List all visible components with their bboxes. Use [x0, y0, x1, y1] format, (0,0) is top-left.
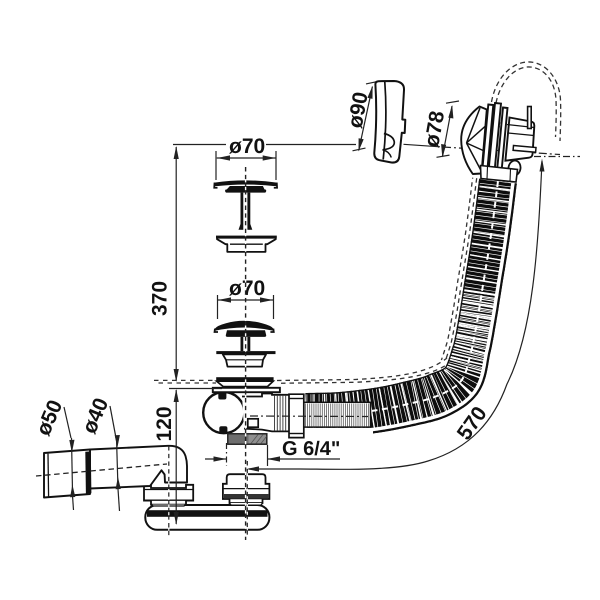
svg-text:ø70: ø70 [229, 277, 265, 300]
svg-text:ø70: ø70 [229, 135, 265, 158]
svg-text:120: 120 [153, 406, 176, 441]
svg-text:370: 370 [149, 281, 172, 316]
svg-text:G 6/4": G 6/4" [282, 438, 340, 460]
